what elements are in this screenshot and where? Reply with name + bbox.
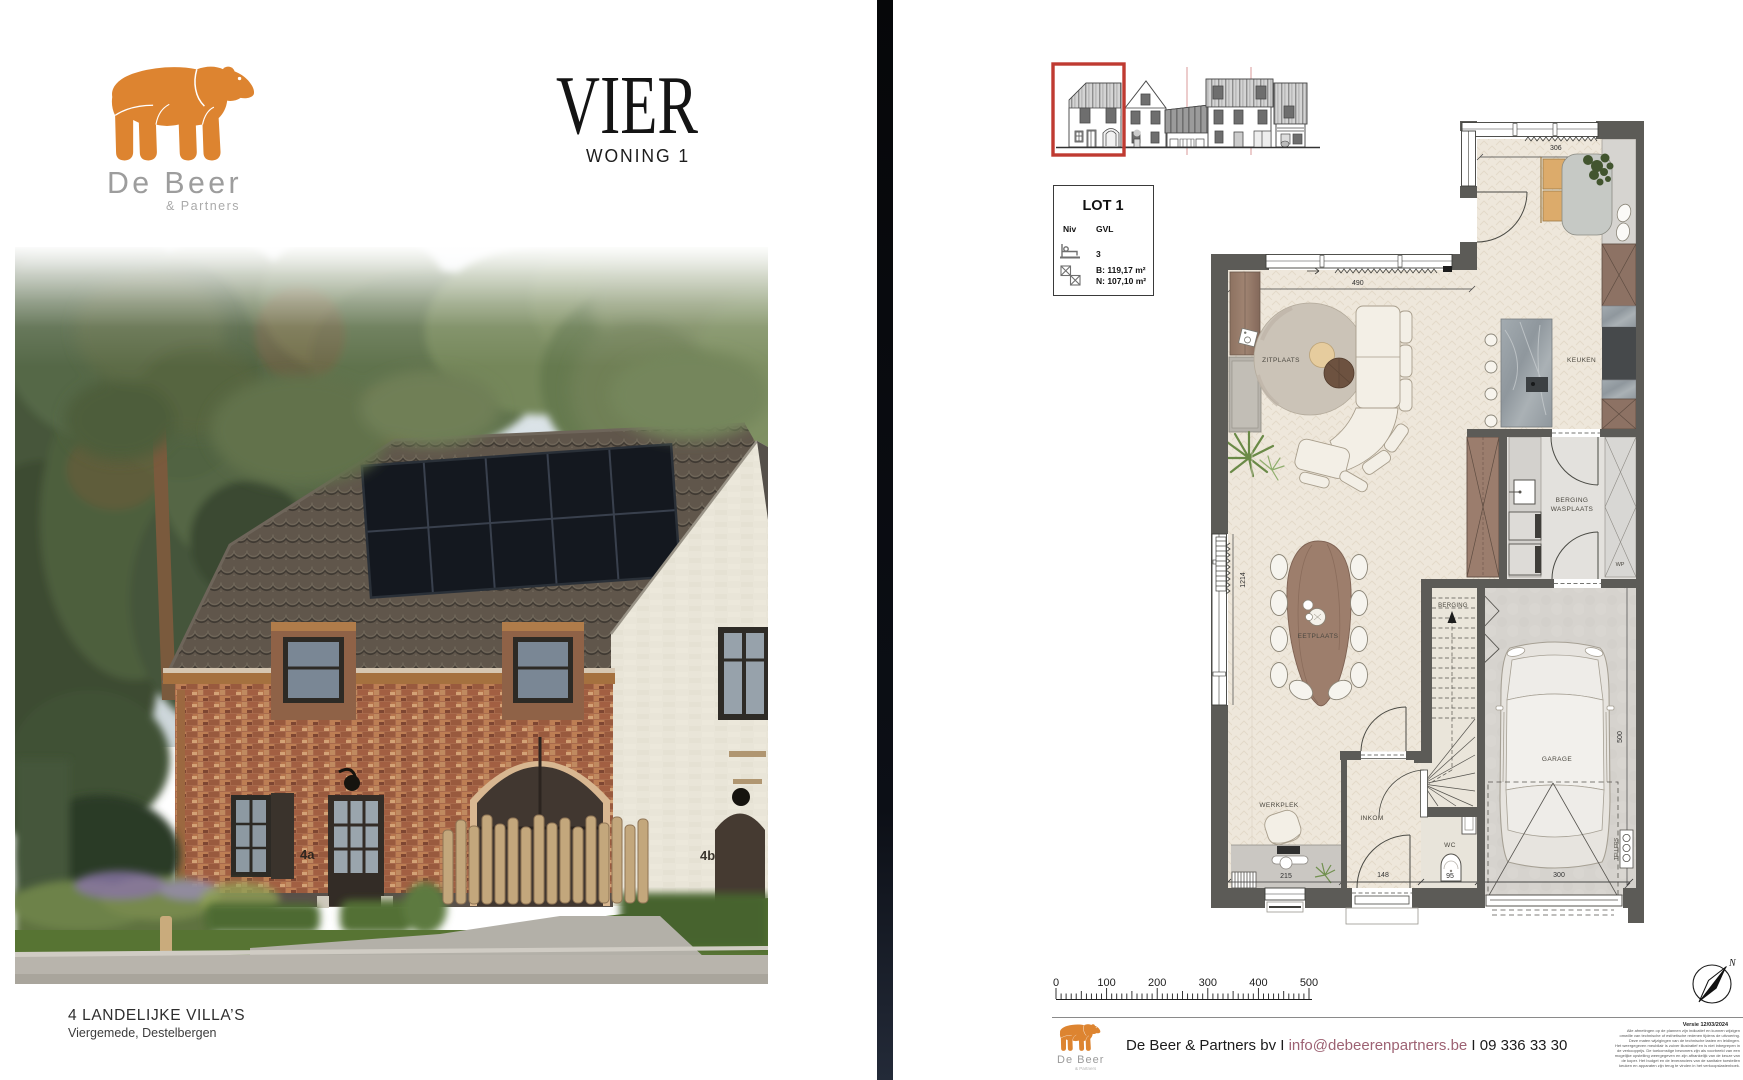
- svg-text:4 LANDELIJKE VILLA’S: 4 LANDELIJKE VILLA’S: [68, 1007, 245, 1024]
- svg-text:500: 500: [1617, 731, 1624, 743]
- svg-text:100: 100: [1097, 977, 1115, 989]
- svg-text:WONING 1: WONING 1: [586, 145, 690, 166]
- svg-text:keuken en apparaten zijn terug: keuken en apparaten zijn terug te vinden…: [1619, 1063, 1740, 1068]
- svg-text:95: 95: [1446, 873, 1454, 880]
- svg-text:WERKPLEK: WERKPLEK: [1259, 802, 1299, 809]
- svg-text:500: 500: [1300, 977, 1318, 989]
- svg-text:200: 200: [1148, 977, 1166, 989]
- svg-text:WC: WC: [1444, 842, 1456, 849]
- svg-text:EETPLAATS: EETPLAATS: [1298, 633, 1339, 640]
- svg-text:B: 119,17 m²: B: 119,17 m²: [1096, 265, 1146, 275]
- svg-text:300: 300: [1553, 872, 1565, 879]
- svg-text:215: 215: [1280, 873, 1292, 880]
- svg-text:4a: 4a: [300, 847, 315, 862]
- svg-text:300: 300: [1199, 977, 1217, 989]
- svg-text:LOT 1: LOT 1: [1082, 198, 1123, 214]
- svg-text:1214: 1214: [1240, 572, 1247, 588]
- svg-text:De Beer: De Beer: [1057, 1054, 1104, 1066]
- svg-text:306: 306: [1550, 145, 1562, 152]
- svg-text:BERGING: BERGING: [1438, 603, 1468, 609]
- svg-text:WP: WP: [1616, 562, 1625, 568]
- svg-text:0: 0: [1053, 977, 1059, 989]
- svg-text:De Beer & Partners bv I info@d: De Beer & Partners bv I info@debeerenpar…: [1126, 1037, 1567, 1054]
- svg-text:Niv: Niv: [1063, 224, 1077, 234]
- svg-text:GVL: GVL: [1096, 224, 1113, 234]
- svg-text:Viergemede, Destelbergen: Viergemede, Destelbergen: [68, 1026, 217, 1040]
- svg-text:3: 3: [1096, 249, 1101, 259]
- svg-text:490: 490: [1352, 280, 1364, 287]
- svg-text:& Partners: & Partners: [1075, 1066, 1097, 1071]
- svg-text:148: 148: [1377, 872, 1389, 879]
- svg-text:WASPLAATS: WASPLAATS: [1551, 506, 1594, 513]
- svg-text:N: N: [1728, 958, 1737, 969]
- svg-text:BERGING: BERGING: [1556, 497, 1589, 504]
- svg-text:& Partners: & Partners: [166, 199, 240, 213]
- svg-text:TELLERS: TELLERS: [1614, 837, 1620, 860]
- svg-text:De Beer: De Beer: [107, 165, 242, 200]
- svg-text:KEUKEN: KEUKEN: [1567, 357, 1596, 364]
- svg-text:ZITPLAATS: ZITPLAATS: [1262, 357, 1300, 364]
- svg-text:INKOM: INKOM: [1360, 815, 1383, 822]
- svg-text:GARAGE: GARAGE: [1542, 756, 1572, 763]
- svg-text:VIER: VIER: [556, 59, 698, 152]
- svg-text:4b: 4b: [700, 848, 715, 863]
- svg-text:400: 400: [1249, 977, 1267, 989]
- svg-text:N: 107,10 m²: N: 107,10 m²: [1096, 276, 1146, 286]
